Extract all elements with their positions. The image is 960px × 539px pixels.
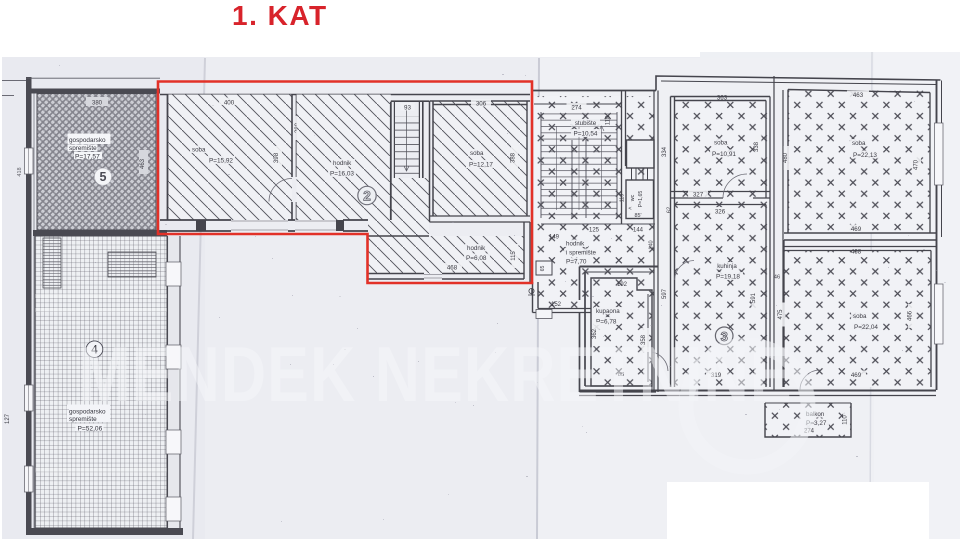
svg-text:62: 62 xyxy=(667,207,673,213)
svg-text:334: 334 xyxy=(662,146,668,157)
svg-text:soba: soba xyxy=(714,140,728,147)
svg-text:469: 469 xyxy=(851,372,862,379)
svg-text:spremište: spremište xyxy=(69,145,97,152)
svg-text:469: 469 xyxy=(851,226,862,233)
svg-text:<: < xyxy=(628,206,631,212)
svg-text:119: 119 xyxy=(620,194,626,203)
svg-text:46: 46 xyxy=(774,275,780,281)
svg-text:475: 475 xyxy=(778,309,784,320)
svg-text:468: 468 xyxy=(851,249,862,256)
svg-text:125: 125 xyxy=(589,228,600,234)
svg-text:65: 65 xyxy=(540,266,546,272)
svg-text:192: 192 xyxy=(617,282,628,288)
svg-text:P=7,70: P=7,70 xyxy=(566,259,587,266)
svg-text:soba: soba xyxy=(852,140,866,147)
svg-text:hodnik: hodnik xyxy=(566,241,585,248)
svg-text:127: 127 xyxy=(5,413,11,424)
svg-text:P=15,92: P=15,92 xyxy=(209,158,233,165)
svg-text:398: 398 xyxy=(273,152,280,163)
svg-text:418: 418 xyxy=(17,167,23,176)
svg-text:363: 363 xyxy=(717,95,728,102)
svg-text:5: 5 xyxy=(100,170,107,184)
svg-text:soba: soba xyxy=(192,147,206,154)
svg-text:400: 400 xyxy=(224,100,235,107)
svg-text:P=6,08: P=6,08 xyxy=(466,255,487,262)
svg-text:P=10,54: P=10,54 xyxy=(574,131,598,138)
svg-text:P=52,06: P=52,06 xyxy=(78,426,103,433)
svg-text:hodnik: hodnik xyxy=(467,245,486,252)
svg-text:118: 118 xyxy=(606,115,612,125)
svg-text:149: 149 xyxy=(549,235,560,241)
svg-text:i spremište: i spremište xyxy=(566,250,596,257)
svg-text:152: 152 xyxy=(551,302,562,308)
svg-text:388: 388 xyxy=(511,152,517,163)
svg-text:1. KAT: 1. KAT xyxy=(232,0,328,31)
svg-text:327: 327 xyxy=(693,192,704,199)
svg-text:stubište: stubište xyxy=(575,120,597,127)
svg-text:hodnik: hodnik xyxy=(333,160,352,167)
svg-text:470: 470 xyxy=(914,159,920,170)
svg-text:soba: soba xyxy=(470,150,484,157)
svg-text:P=10,91: P=10,91 xyxy=(712,151,736,158)
svg-text:591: 591 xyxy=(751,292,757,303)
svg-text:soba: soba xyxy=(853,313,867,320)
svg-text:85': 85' xyxy=(634,213,641,219)
svg-text:463: 463 xyxy=(140,158,146,169)
svg-text:93: 93 xyxy=(404,105,411,112)
svg-text:326: 326 xyxy=(715,209,726,216)
svg-text:P=22,13: P=22,13 xyxy=(853,152,877,159)
svg-text:gospodarsko: gospodarsko xyxy=(69,137,106,144)
svg-text:115: 115 xyxy=(511,251,517,261)
svg-text:274: 274 xyxy=(571,105,582,112)
svg-text:P=16,03: P=16,03 xyxy=(330,171,354,178)
svg-text:466: 466 xyxy=(908,310,914,321)
svg-text:468: 468 xyxy=(447,265,458,272)
svg-text:306: 306 xyxy=(476,101,487,108)
svg-text:kuhinja: kuhinja xyxy=(717,263,737,270)
svg-text:110: 110 xyxy=(843,415,849,425)
svg-text:kupaona: kupaona xyxy=(596,308,620,315)
svg-text:597: 597 xyxy=(662,288,668,299)
svg-text:140: 140 xyxy=(649,240,655,249)
svg-text:463: 463 xyxy=(853,92,864,99)
svg-text:wc: wc xyxy=(630,194,636,202)
svg-text:380: 380 xyxy=(92,101,103,107)
svg-text:P=19,18: P=19,18 xyxy=(716,274,740,281)
svg-text:P=1,65: P=1,65 xyxy=(638,191,644,208)
svg-text:P=22,04: P=22,04 xyxy=(854,324,878,331)
svg-text:480: 480 xyxy=(783,152,789,163)
svg-text:338: 338 xyxy=(754,141,760,152)
svg-text:2: 2 xyxy=(363,189,371,204)
svg-text:144: 144 xyxy=(633,228,644,234)
svg-text:P=17,57: P=17,57 xyxy=(75,154,100,161)
svg-text:P=12,17: P=12,17 xyxy=(469,162,493,169)
